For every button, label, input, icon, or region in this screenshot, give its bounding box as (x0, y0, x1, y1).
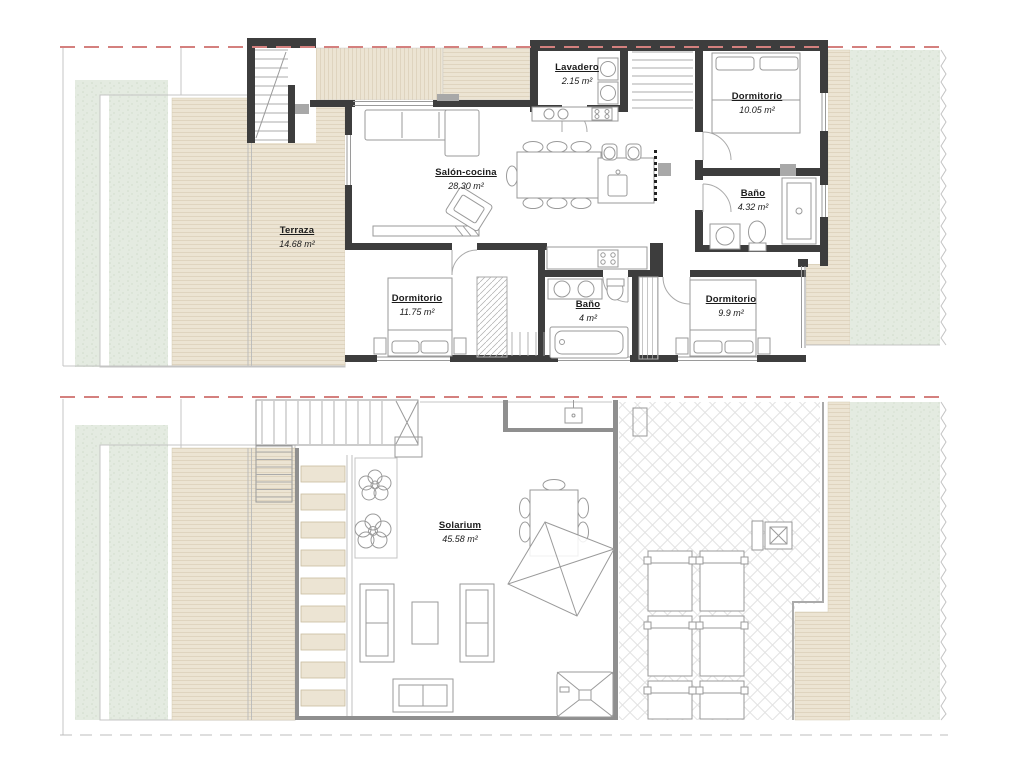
wardrobe (639, 277, 658, 359)
planter-plants (355, 458, 397, 558)
room-area: 14.68 m² (279, 239, 315, 249)
room-area: 10.05 m² (732, 105, 783, 115)
toilet (749, 221, 766, 243)
room-area: 2.15 m² (555, 76, 599, 86)
room-area: 4.32 m² (738, 202, 769, 212)
wardrobe (477, 277, 507, 357)
column-dots (654, 150, 657, 201)
bed (690, 280, 756, 356)
lounge-furniture (360, 584, 494, 712)
plant-icon (359, 470, 391, 500)
dining-table (507, 142, 602, 209)
room-label-lavadero: Lavadero 2.15 m² (555, 62, 599, 86)
room-name: Salón-cocina (435, 167, 497, 178)
light-fixture (565, 408, 582, 423)
room-label-bano-2: Baño 4 m² (576, 299, 601, 323)
chaise (445, 110, 479, 156)
room-area: 4 m² (576, 313, 601, 323)
outdoor-dining (508, 480, 614, 617)
room-area: 28.30 m² (435, 181, 497, 191)
tv-bench (437, 94, 459, 101)
outdoor-shower (557, 672, 613, 717)
room-label-solarium: Solarium 45.58 m² (439, 520, 481, 544)
room-name: Dormitorio (392, 293, 443, 304)
room-label-dormitorio-2: Dormitorio 11.75 m² (392, 293, 443, 317)
room-label-dormitorio-3: Dormitorio 9.9 m² (706, 294, 757, 318)
room-label-dormitorio-1: Dormitorio 10.05 m² (732, 91, 783, 115)
room-label-bano-1: Baño 4.32 m² (738, 188, 769, 212)
room-label-salon-cocina: Salón-cocina 28.30 m² (435, 167, 497, 191)
sideboard (373, 226, 479, 236)
room-area: 9.9 m² (706, 308, 757, 318)
room-name: Dormitorio (706, 294, 757, 305)
plant-icon (355, 514, 391, 548)
first-floor-plan (63, 38, 946, 367)
room-area: 11.75 m² (392, 307, 443, 317)
floorplan-drawing (0, 0, 1024, 768)
room-name: Terraza (279, 225, 315, 236)
room-name: Baño (738, 188, 769, 199)
entry-deck (313, 48, 530, 100)
room-area: 45.58 m² (439, 534, 481, 544)
bathtub (550, 327, 628, 358)
room-name: Baño (576, 299, 601, 310)
room-name: Lavadero (555, 62, 599, 73)
room-name: Dormitorio (732, 91, 783, 102)
room-name: Solarium (439, 520, 481, 531)
site-left-lower (63, 399, 295, 735)
gravel-terrace (619, 402, 823, 720)
side-table (752, 521, 792, 550)
bed (388, 278, 452, 356)
pergola-slats (301, 455, 352, 716)
room-label-terraza: Terraza 14.68 m² (279, 225, 315, 249)
solarium-plan (60, 399, 948, 735)
coffee-table (412, 602, 438, 644)
floorplan-page: Terraza 14.68 m² Salón-cocina 28.30 m² L… (0, 0, 1024, 768)
